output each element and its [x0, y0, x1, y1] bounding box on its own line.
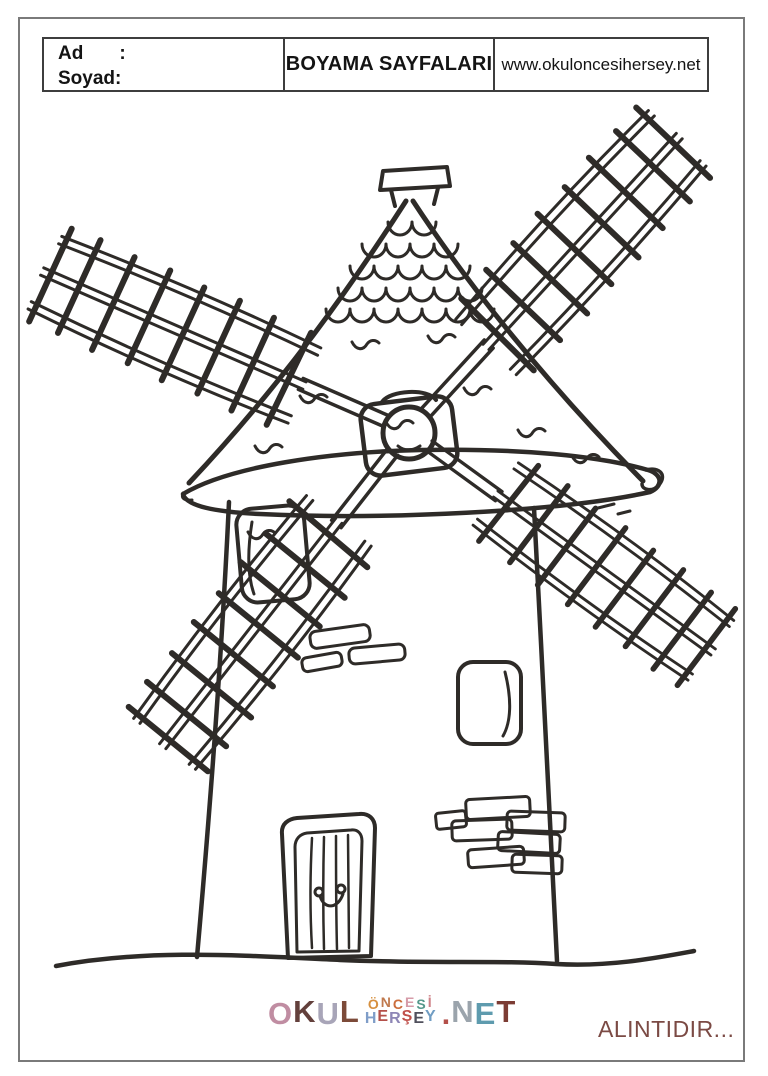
coloring-page: Ad: Soyad: BOYAMA SAYFALARI www.okulonce…	[0, 0, 768, 1076]
logo-word-okul: OKUL	[268, 997, 360, 1028]
page-title-box: BOYAMA SAYFALARI	[283, 37, 495, 92]
surname-row: Soyad:	[58, 66, 283, 91]
logo-word-net: .NET	[442, 997, 517, 1028]
site-logo: OKUL ÖNCESİ HERŞEY .NET	[268, 995, 516, 1028]
loose-planks	[301, 624, 406, 672]
logo-letter: L	[340, 996, 360, 1027]
logo-letter: E	[377, 1008, 389, 1026]
name-surname-box: Ad: Soyad:	[42, 37, 285, 92]
logo-stack: ÖNCESİ HERŞEY	[365, 995, 437, 1028]
logo-word-hersey: HERŞEY	[365, 1009, 437, 1027]
name-label: Ad	[58, 43, 83, 64]
roof-eave	[182, 450, 662, 516]
logo-letter: N	[451, 996, 474, 1027]
page-title: BOYAMA SAYFALARI	[286, 53, 493, 76]
logo-letter: .	[442, 998, 452, 1029]
blade-upper-left	[21, 224, 405, 469]
logo-letter: E	[475, 998, 497, 1029]
logo-letter: O	[268, 998, 293, 1029]
logo-letter: K	[293, 996, 316, 1027]
logo-letter: Y	[425, 1008, 437, 1026]
ground-line	[56, 951, 694, 966]
logo-letter: T	[496, 996, 516, 1027]
window-right	[458, 662, 521, 744]
logo-letter: E	[413, 1010, 425, 1028]
website-url: www.okuloncesihersey.net	[501, 55, 700, 75]
mill-body	[197, 502, 630, 961]
name-colon: :	[119, 41, 125, 66]
door-handle-bolt	[315, 888, 323, 896]
attribution-text: ALINTIDIR...	[598, 1016, 734, 1043]
website-box: www.okuloncesihersey.net	[493, 37, 709, 92]
door	[282, 814, 375, 958]
header-table: Ad: Soyad: BOYAMA SAYFALARI www.okulonce…	[42, 37, 709, 92]
logo-letter: R	[389, 1010, 402, 1028]
door-handle-bolt	[337, 885, 345, 893]
surname-label: Soyad:	[58, 68, 121, 89]
name-row: Ad:	[58, 41, 283, 66]
windmill-drawing	[0, 0, 768, 1076]
logo-letter: H	[365, 1010, 378, 1028]
brick-patch	[435, 796, 565, 874]
logo-letter: Ş	[402, 1008, 414, 1026]
logo-letter: U	[317, 998, 340, 1029]
